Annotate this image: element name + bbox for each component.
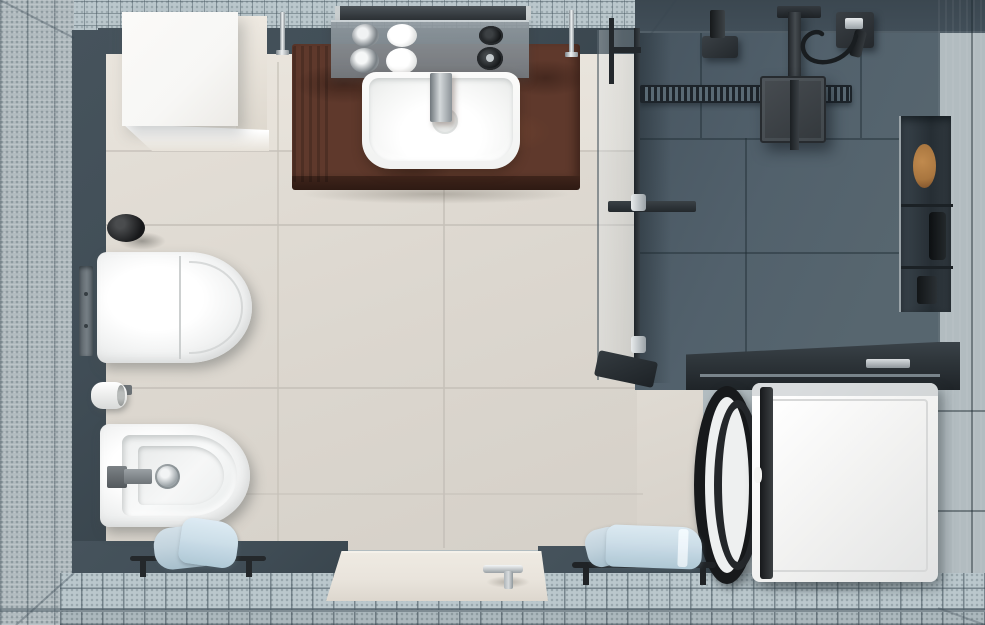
basin-faucet [430,73,452,122]
bathroom-top-view [0,0,985,625]
glass-hinge-bottom [631,336,646,353]
counter-front-lip [292,176,580,190]
floor-grout-h2 [106,387,643,389]
washer-hinge-dot [754,467,762,483]
niche-item-bottle-dark [929,212,946,260]
washing-machine [752,383,938,582]
glass-support-bar [608,201,696,212]
toilet-highlight [107,264,167,334]
right-wall-grout-h1 [938,410,985,412]
toilet-paper-roll [91,382,127,409]
bidet [100,424,250,527]
wall-niche-left [79,266,93,356]
flush-plate [107,214,145,242]
toilet-lid-seam [179,256,181,359]
glass-top-bracket-2 [610,47,641,53]
rail-post-right-2 [700,567,706,585]
niche-shelf-line-2 [901,266,953,269]
soap-pump-reflection [352,24,379,47]
towel-rod-right [569,10,574,56]
left-wall-mosaic [0,0,74,625]
towel-rod-left [280,12,285,54]
ceiling-handle-a [710,10,725,38]
towel-binding-stripe [677,529,688,567]
shower-arm-lower [790,80,799,150]
wall-hung-toilet [97,252,252,363]
towel-rod-left-foot [276,50,289,55]
ceiling-mount-a [702,36,738,58]
hanging-towel-brown [293,46,331,182]
towel-rail-right [572,524,720,586]
niche-item-wood [913,144,936,188]
roll-end-cap [117,385,125,406]
towel-rod-right-foot [565,52,578,57]
black-bottle-2 [477,47,503,70]
bottom-wall-top-mosaic [60,612,985,625]
shower-hose [786,4,886,82]
laundry-counter-bracket [866,359,910,368]
mirror-top-bar [335,6,531,20]
shower-grout-h2 [635,252,940,254]
storage-cabinet [122,12,238,126]
cabinet-side-face [236,16,267,148]
towels-right-folded [605,524,702,569]
right-wall-grout-h2 [938,510,985,512]
rail-post-left-2 [246,560,252,577]
rail-post-right-1 [583,567,589,585]
washer-panel-line [766,399,928,572]
soap-pump [350,48,379,73]
wall-niche-shelf-right [899,116,951,312]
laundry-counter-glass-edge [700,374,940,377]
bidet-faucet [124,469,152,484]
niche-item-small-dark [917,276,937,304]
bidet-drain [155,464,180,489]
niche-dot-2 [84,324,88,328]
towel-rail-left [128,520,268,580]
washer-top-strip [752,383,938,396]
right-wall-grout-v [971,0,973,608]
door-handle-post [504,571,513,589]
shower-grout-v1 [745,138,747,388]
floor-grout-v1 [277,62,279,548]
niche-dot-1 [84,292,88,296]
white-cup [386,48,417,74]
black-bottle-1 [479,26,503,45]
floor-grout-h1 [106,224,643,226]
toilet-seat-line [189,261,243,354]
white-cup-reflection [387,24,417,47]
washer-side-trim [760,387,773,579]
towels-left-folded [177,516,241,570]
glass-hinge-top [631,194,646,211]
niche-shelf-line-1 [901,204,953,207]
rail-post-left-1 [140,560,146,577]
bottle-cap-chrome [486,54,494,62]
door-handle [483,565,523,573]
